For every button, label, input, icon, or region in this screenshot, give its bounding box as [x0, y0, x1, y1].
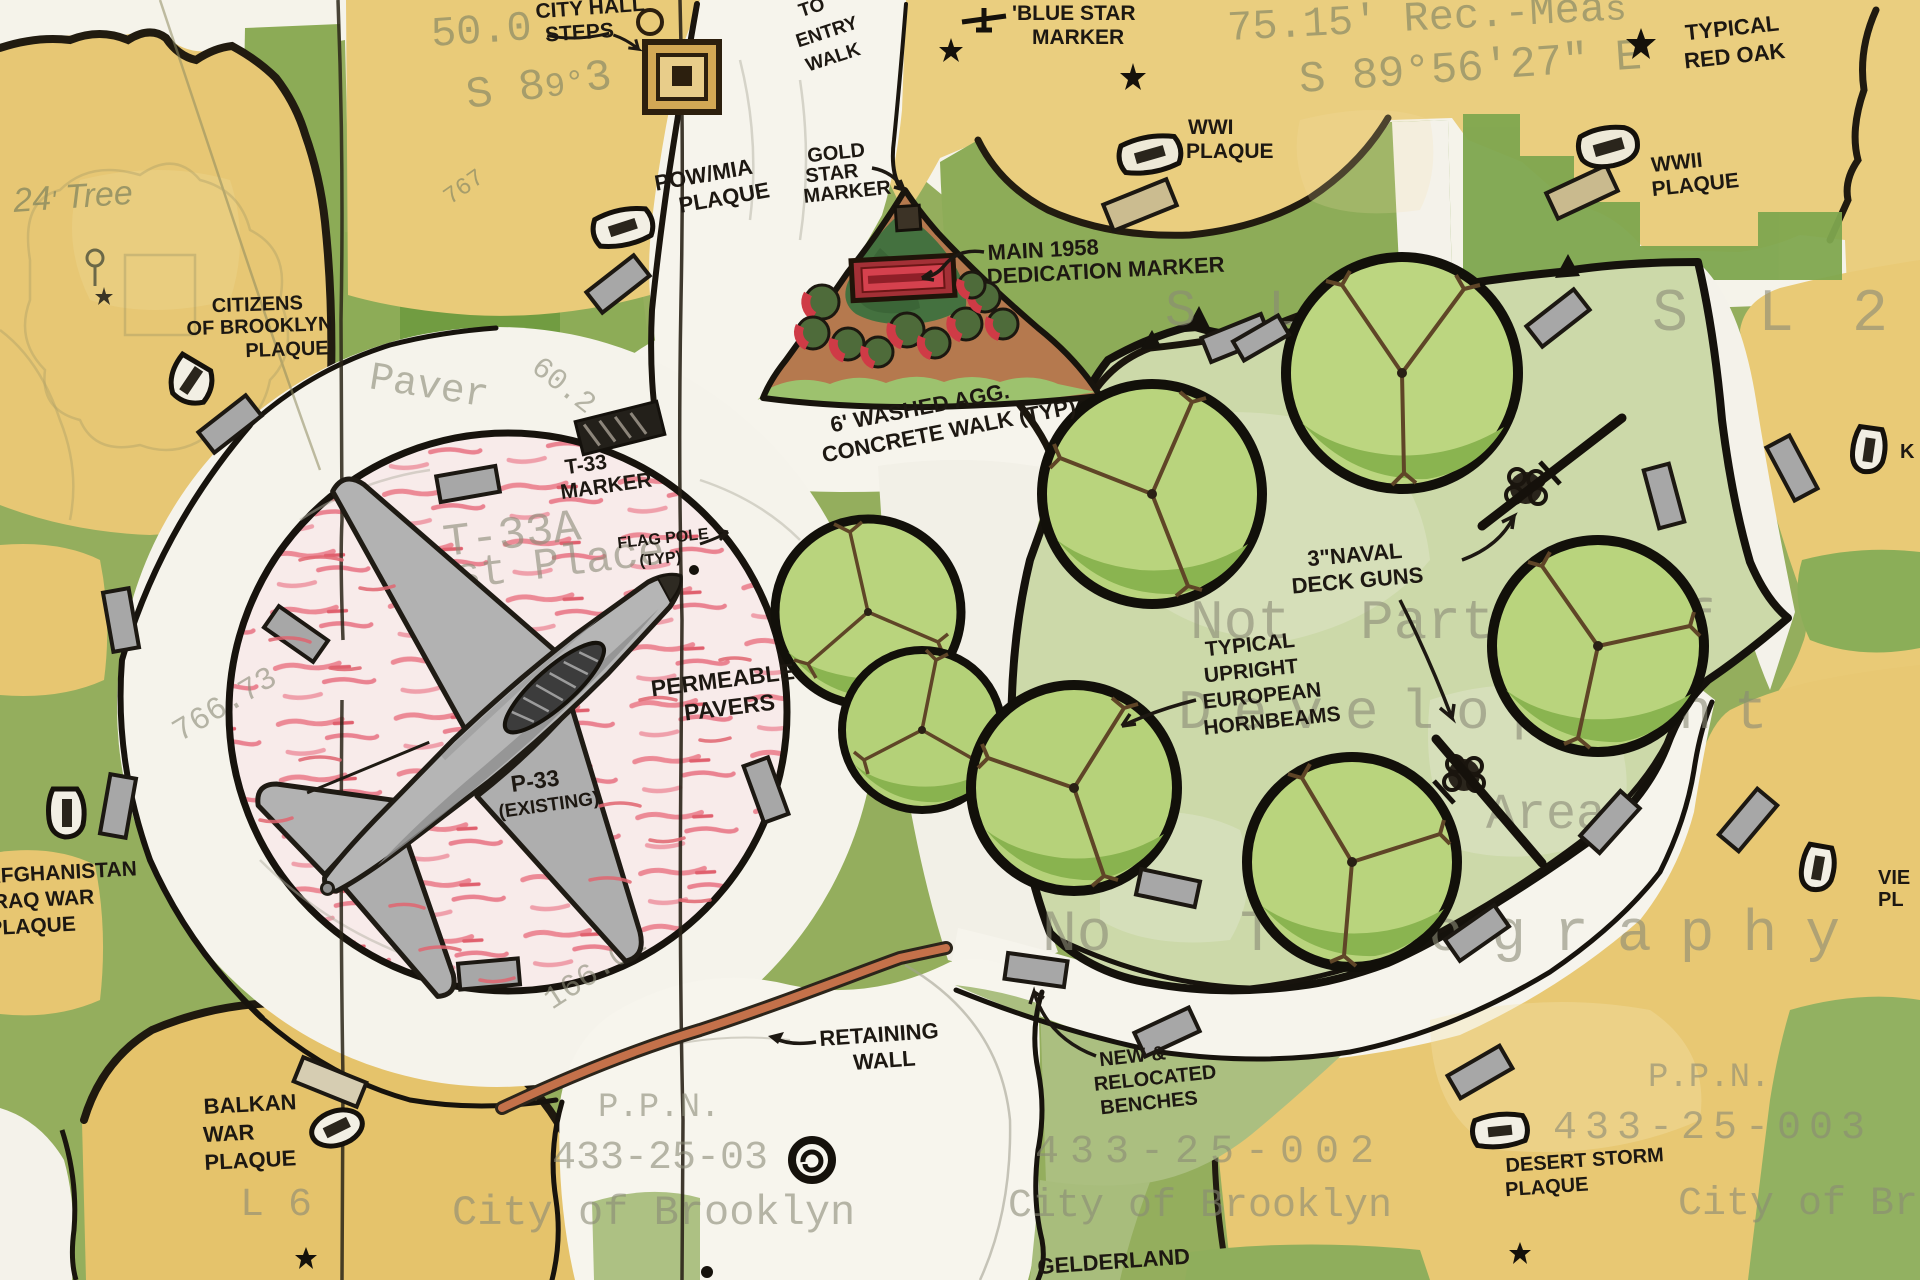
svg-text:WWI: WWI [1188, 116, 1233, 139]
svg-text:VIE: VIE [1878, 867, 1910, 889]
svg-text:K: K [1900, 441, 1915, 463]
svg-text:WAR: WAR [202, 1119, 255, 1147]
svg-text:PLAQUE: PLAQUE [204, 1145, 297, 1175]
svg-text:P.P.N.: P.P.N. [598, 1089, 720, 1127]
svg-text:433-25-003: 433-25-003 [1553, 1106, 1873, 1151]
svg-text:S: S [1652, 281, 1688, 349]
svg-text:City of Brooklyn: City of Brooklyn [1678, 1182, 1920, 1227]
svg-text:PLAQUE: PLAQUE [0, 913, 76, 941]
svg-text:50.0: 50.0 [430, 4, 534, 59]
svg-text:City of Brooklyn: City of Brooklyn [1008, 1184, 1392, 1229]
svg-text:BALKAN: BALKAN [203, 1089, 297, 1119]
svg-text:STEPS: STEPS [544, 19, 614, 47]
svg-text:2: 2 [1852, 281, 1888, 349]
svg-text:MARKER: MARKER [1032, 26, 1124, 49]
svg-text:S: S [1165, 282, 1196, 341]
svg-text:CITIZENS: CITIZENS [211, 292, 303, 317]
svg-text:City of Brooklyn: City of Brooklyn [452, 1189, 855, 1237]
svg-text:PLAQUE: PLAQUE [1186, 140, 1274, 163]
svg-text:433-25-002: 433-25-002 [1035, 1130, 1385, 1175]
svg-text:WALL: WALL [852, 1046, 916, 1075]
svg-text:P.P.N.: P.P.N. [1648, 1059, 1770, 1097]
svg-text:PL: PL [1878, 889, 1904, 911]
svg-text:PLAQUE: PLAQUE [245, 337, 329, 362]
svg-text:433-25-03: 433-25-03 [552, 1136, 768, 1181]
svg-text:L: L [1758, 281, 1794, 349]
svg-text:'BLUE STAR: 'BLUE STAR [1012, 2, 1136, 25]
svg-text:L 6: L 6 [240, 1183, 312, 1228]
svg-text:Part: Part [1360, 591, 1494, 655]
